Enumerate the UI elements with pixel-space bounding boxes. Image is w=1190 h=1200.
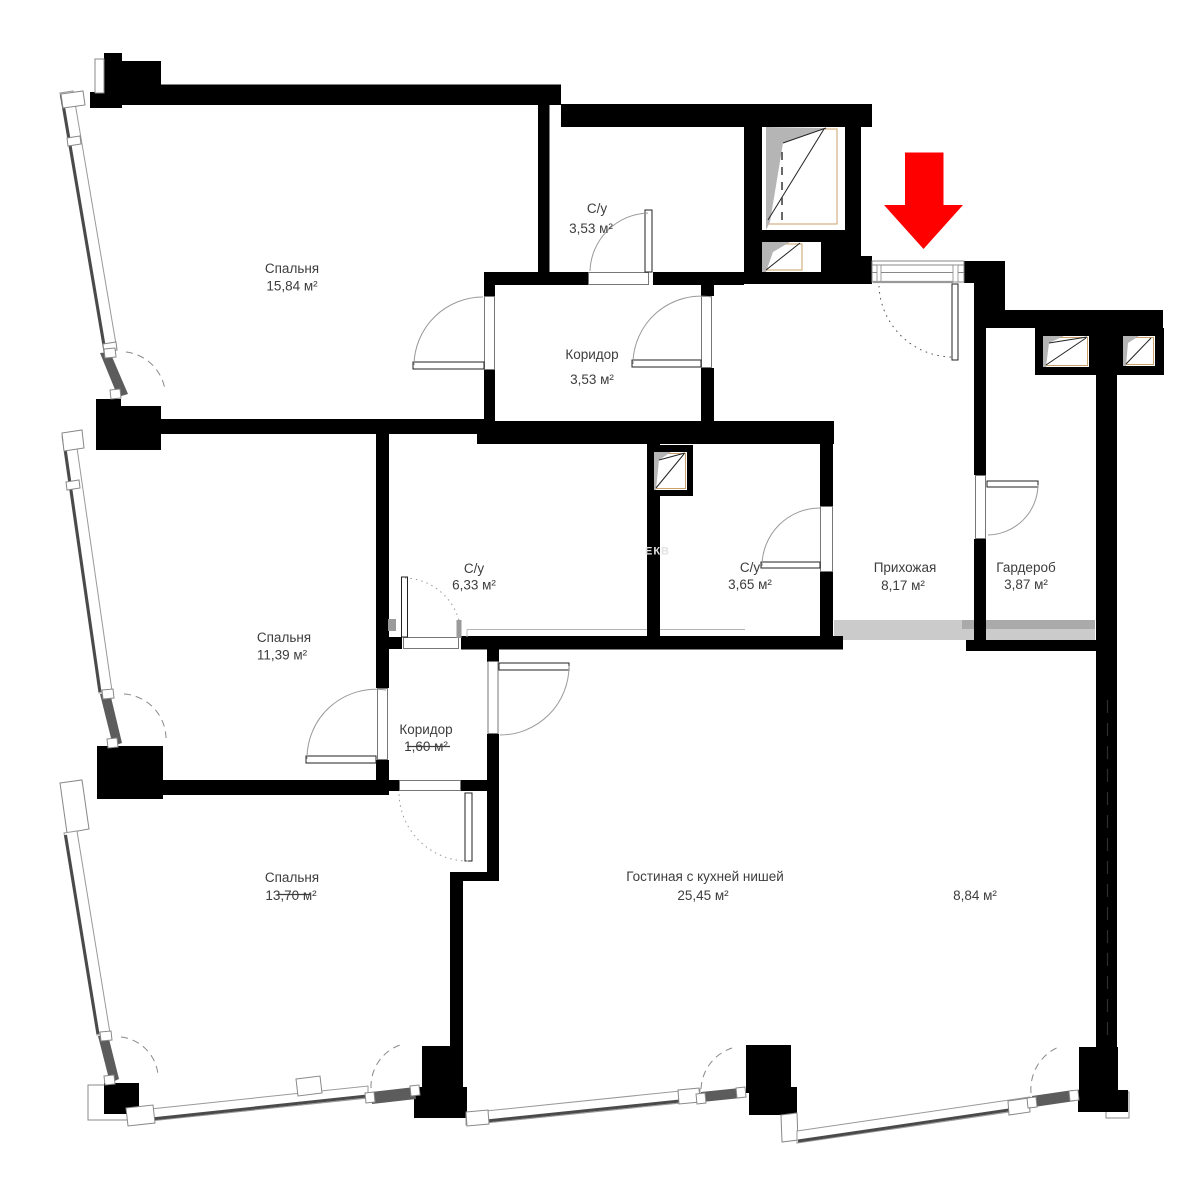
svg-text:3,53 м²: 3,53 м² — [570, 372, 614, 387]
svg-text:8,84 м²: 8,84 м² — [953, 888, 997, 903]
svg-text:Коридор: Коридор — [399, 722, 452, 737]
svg-text:3,53 м²: 3,53 м² — [569, 221, 613, 236]
svg-text:25,45 м²: 25,45 м² — [677, 888, 729, 903]
svg-text:3,65 м²: 3,65 м² — [728, 577, 772, 592]
svg-text:ЕКВ: ЕКВ — [645, 546, 670, 558]
svg-text:С/у: С/у — [464, 561, 485, 576]
svg-text:С/у: С/у — [740, 560, 761, 575]
svg-text:Спальня: Спальня — [257, 630, 311, 645]
svg-text:Гостиная с кухней нишей: Гостиная с кухней нишей — [626, 869, 784, 884]
svg-text:8,17 м²: 8,17 м² — [881, 578, 925, 593]
svg-text:Прихожая: Прихожая — [874, 560, 937, 575]
svg-text:3,87 м²: 3,87 м² — [1004, 577, 1048, 592]
svg-text:Спальня: Спальня — [265, 261, 319, 276]
svg-text:Спальня: Спальня — [265, 870, 319, 885]
svg-text:Коридор: Коридор — [565, 347, 618, 362]
svg-text:Гардероб: Гардероб — [996, 560, 1056, 575]
svg-text:С/у: С/у — [587, 201, 608, 216]
svg-text:13,70 м²: 13,70 м² — [265, 888, 317, 903]
svg-text:6,33 м²: 6,33 м² — [452, 578, 496, 593]
svg-text:11,39 м²: 11,39 м² — [257, 648, 308, 663]
svg-text:15,84 м²: 15,84 м² — [266, 279, 318, 294]
